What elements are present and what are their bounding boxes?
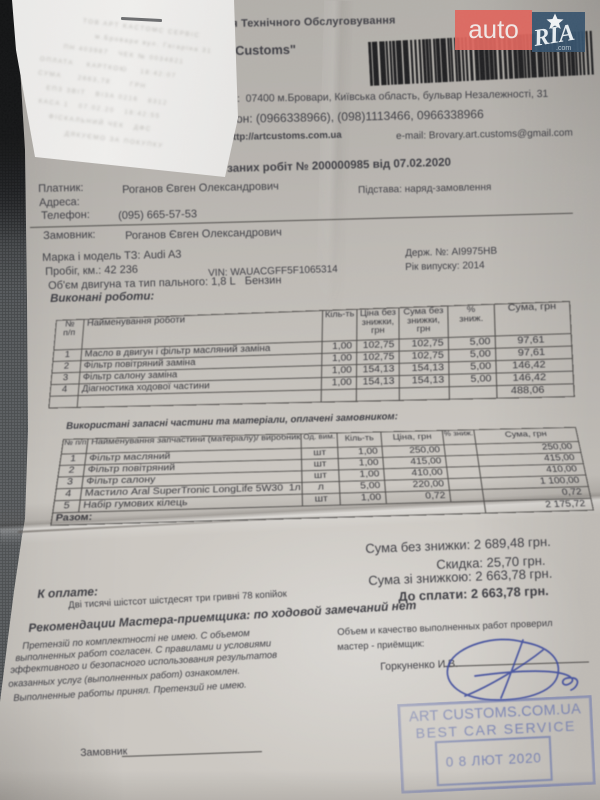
svg-text:.com: .com [556, 45, 571, 52]
